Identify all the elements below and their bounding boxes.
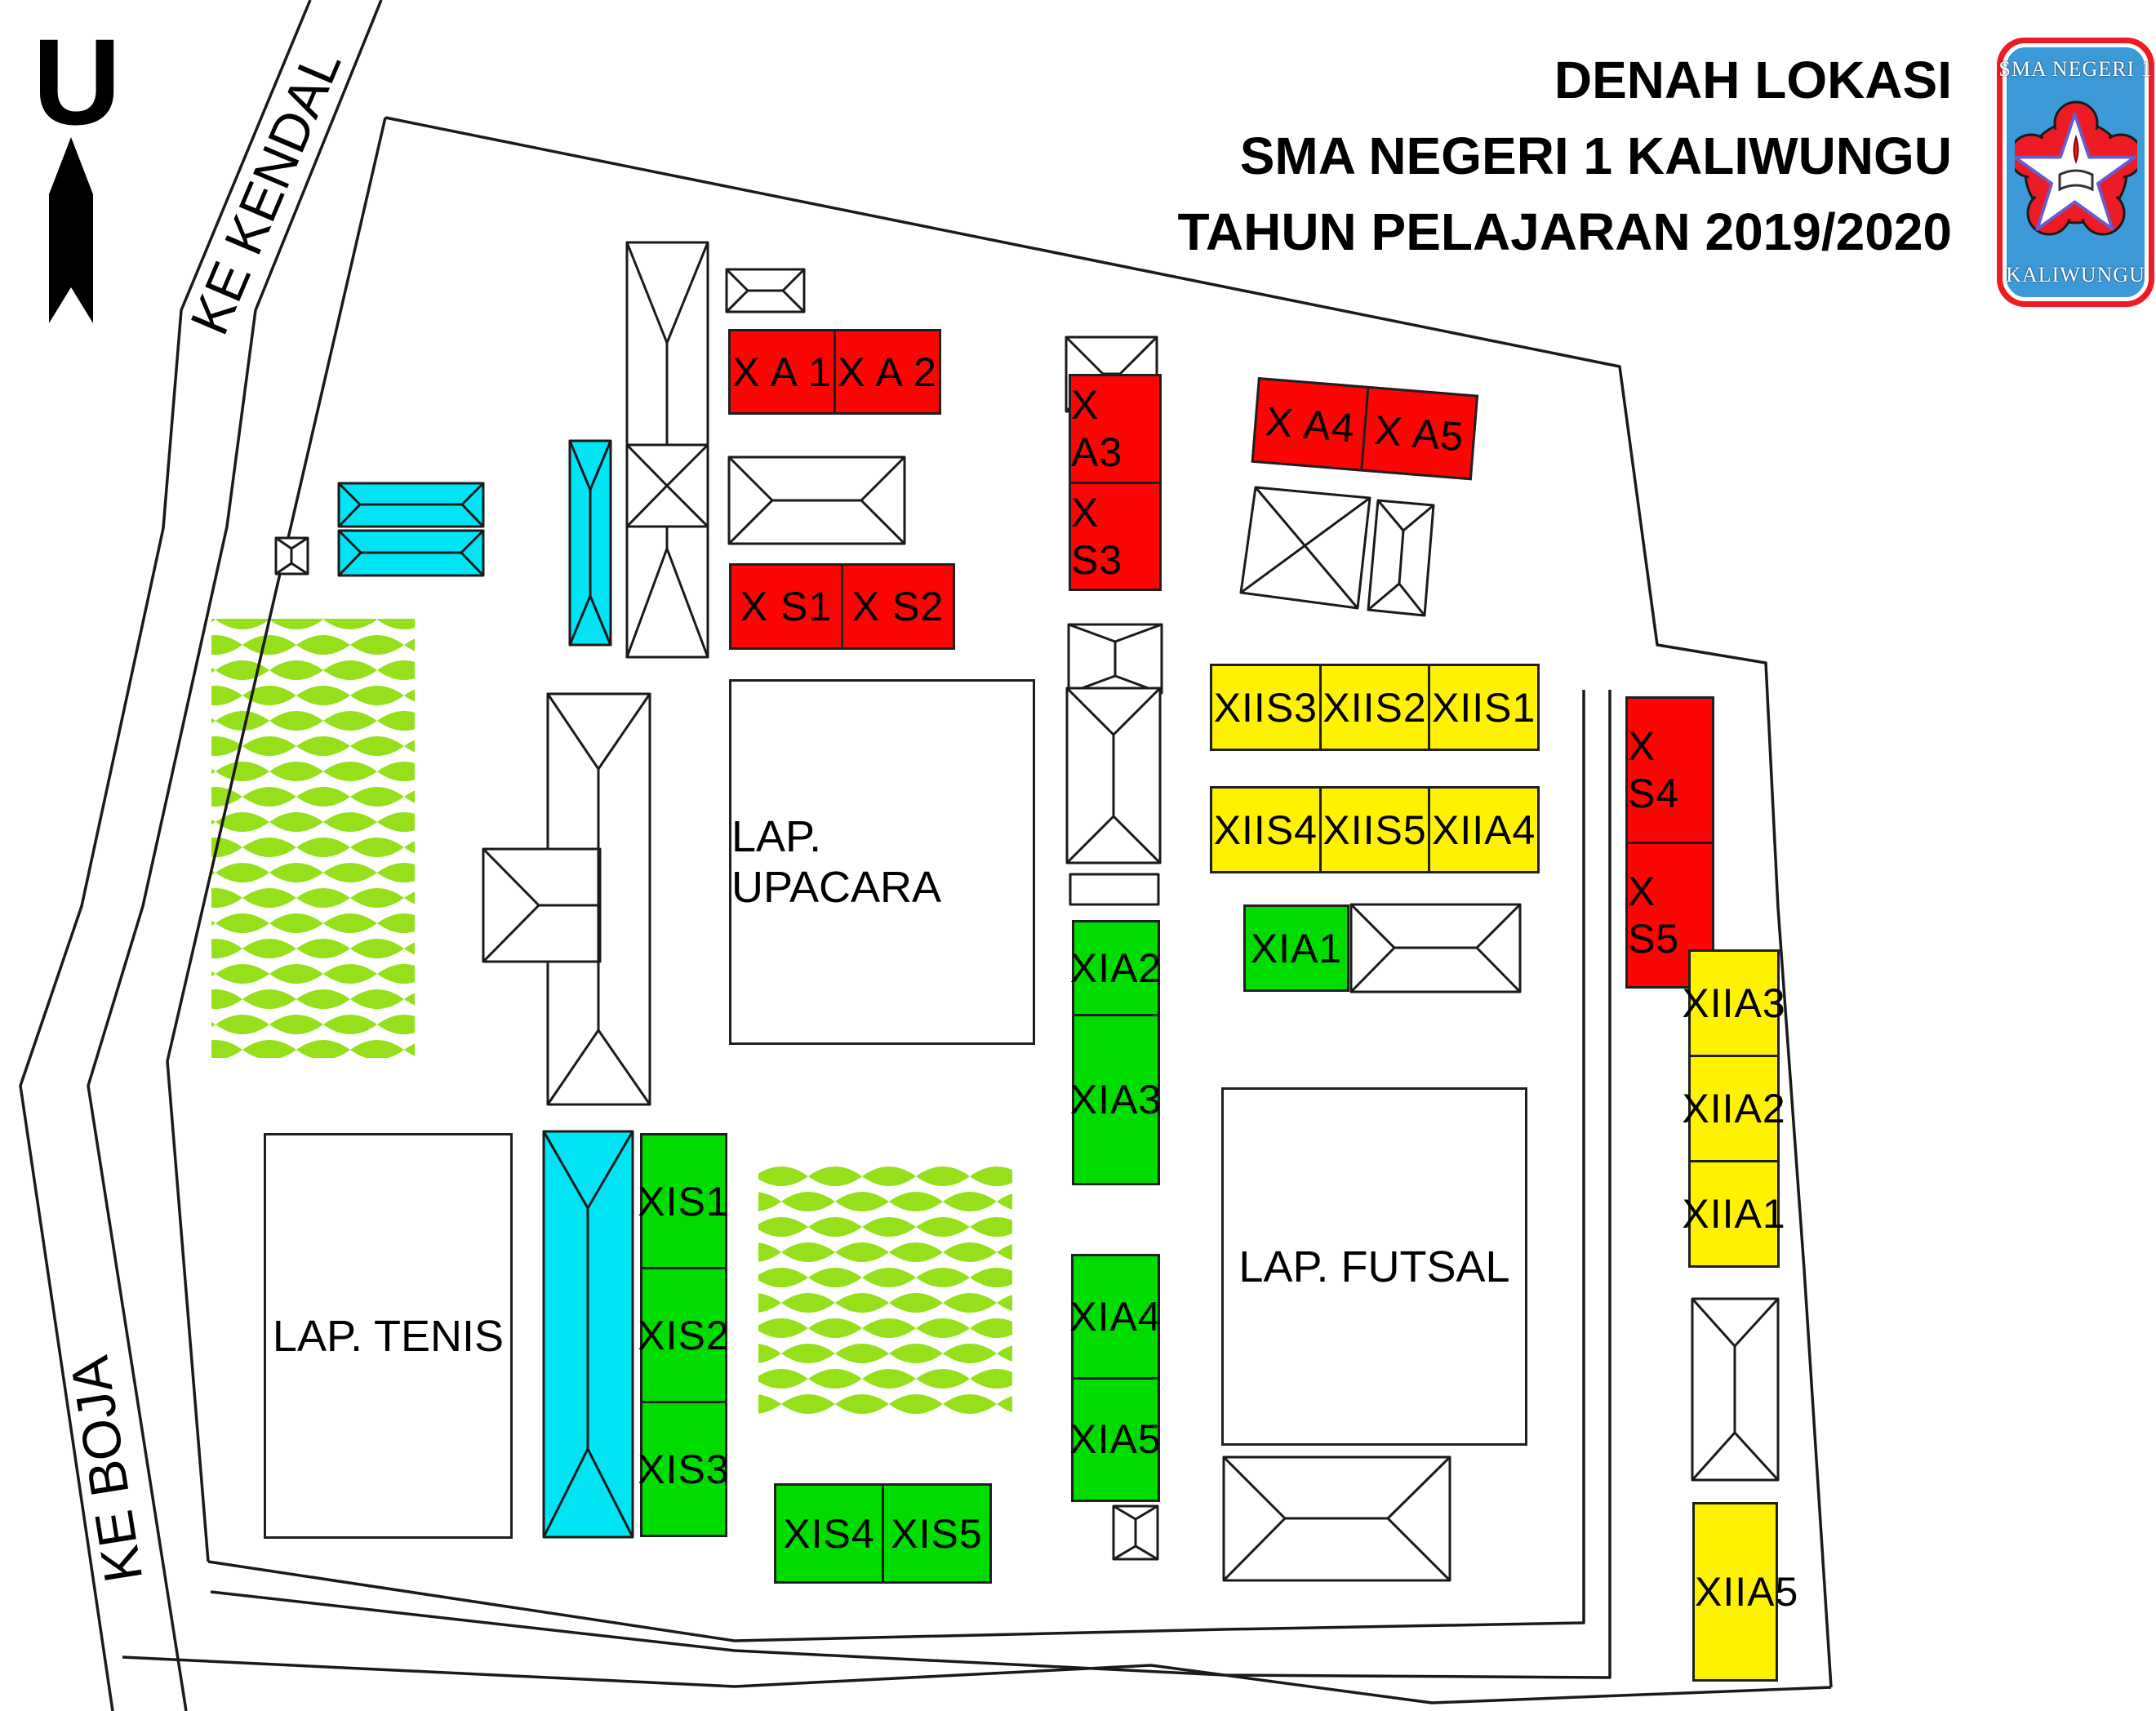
title-line-1: DENAH LOKASI (1178, 42, 1952, 118)
title-line-2: SMA NEGERI 1 KALIWUNGU (1178, 118, 1952, 194)
building-cyan-slab (570, 441, 611, 645)
classroom-xs3[interactable]: X S3 (1071, 482, 1159, 589)
building-tiny-gate (276, 538, 308, 574)
compass-north-letter: U (33, 11, 121, 153)
classroom-xa1[interactable]: X A 1 (731, 331, 834, 412)
building-x-roof (1241, 487, 1370, 608)
building-cyan-pair-bottom (339, 531, 483, 576)
site-map-canvas: U DENAH LOKASI SMA NEGERI 1 KALIWUNGU TA… (0, 0, 2156, 1711)
classroom-xiis2[interactable]: XIIS2 (1319, 666, 1429, 749)
building-north-hall (627, 242, 708, 657)
classroom-xiia2[interactable]: XIIA2 (1691, 1055, 1777, 1160)
classroom-xiis5[interactable]: XIIS5 (1319, 789, 1429, 871)
logo-top-text: SMA NEGERI 1 (1998, 57, 2152, 82)
page-title: DENAH LOKASI SMA NEGERI 1 KALIWUNGU TAHU… (1178, 42, 1952, 270)
classroom-xa3[interactable]: X A3 (1071, 376, 1159, 482)
classroom-xia1[interactable]: XIA1 (1246, 907, 1347, 989)
classroom-block-xs4-xs5[interactable]: X S4 X S5 (1625, 696, 1714, 989)
classroom-xa5[interactable]: X A5 (1360, 389, 1476, 478)
classroom-block-xia4-xia5[interactable]: XIA4 XIA5 (1071, 1254, 1160, 1502)
classroom-xiia4[interactable]: XIIA4 (1428, 789, 1537, 871)
classroom-xis5[interactable]: XIS5 (882, 1486, 989, 1581)
building-beside-xia1 (1351, 904, 1520, 992)
building-east-column (1692, 1299, 1778, 1480)
school-logo-panel: SMA NEGERI 1 KALIWUNGU (2003, 43, 2149, 301)
classroom-block-xia1[interactable]: XIA1 (1243, 904, 1349, 992)
building-small-central (1069, 624, 1162, 693)
field-lap-upacara-label: LAP. UPACARA (731, 811, 1033, 913)
classroom-xiia3[interactable]: XIIA3 (1691, 952, 1777, 1055)
building-cyan-tall (544, 1131, 633, 1537)
building-cyan-pair-top (339, 483, 483, 527)
classroom-xiis1[interactable]: XIIS1 (1428, 666, 1537, 749)
classroom-xs4[interactable]: X S4 (1628, 699, 1712, 842)
classroom-xiis4[interactable]: XIIS4 (1212, 789, 1319, 871)
classroom-xia2[interactable]: XIA2 (1074, 922, 1158, 1014)
field-lap-futsal: LAP. FUTSAL (1221, 1087, 1527, 1446)
classroom-xis4[interactable]: XIS4 (776, 1486, 882, 1581)
title-line-3: TAHUN PELAJARAN 2019/2020 (1178, 194, 1952, 270)
building-t-shape (483, 694, 650, 1104)
classroom-block-xis4-xis5[interactable]: XIS4 XIS5 (774, 1483, 992, 1584)
classroom-xia4[interactable]: XIA4 (1074, 1256, 1158, 1377)
classroom-block-xa1-xa2[interactable]: X A 1 X A 2 (728, 329, 941, 415)
north-arrow-icon (49, 137, 93, 323)
classroom-block-xiia5[interactable]: XIIA5 (1692, 1502, 1778, 1682)
classroom-block-xiis-row1[interactable]: XIIS3 XIIS2 XIIS1 (1210, 664, 1540, 751)
school-logo: SMA NEGERI 1 KALIWUNGU (1997, 38, 2154, 307)
classroom-block-xa4-xa5[interactable]: X A4 X A5 (1251, 377, 1479, 480)
classroom-xs2[interactable]: X S2 (841, 566, 953, 647)
building-narrow-rotated (1368, 500, 1434, 616)
field-lap-tenis: LAP. TENIS (264, 1133, 513, 1539)
classroom-xiia5[interactable]: XIIA5 (1695, 1504, 1798, 1679)
building-central-hall (1067, 688, 1160, 863)
tree-grove-west (211, 619, 415, 1058)
classroom-block-xiia-column[interactable]: XIIA3 XIIA2 XIIA1 (1688, 949, 1780, 1268)
building-south-futsal (1224, 1457, 1450, 1580)
classroom-xa2[interactable]: X A 2 (834, 331, 939, 412)
classroom-xis2[interactable]: XIS2 (642, 1267, 725, 1401)
classroom-block-xa3-xs3[interactable]: X A3 X S3 (1069, 374, 1162, 591)
logo-emblem-icon (2015, 95, 2137, 250)
building-plain-rect (1070, 874, 1158, 904)
classroom-xia5[interactable]: XIA5 (1074, 1377, 1158, 1500)
classroom-block-xiis-row2[interactable]: XIIS4 XIIS5 XIIA4 (1210, 786, 1540, 873)
field-lap-tenis-label: LAP. TENIS (273, 1311, 504, 1362)
classroom-xis1[interactable]: XIS1 (642, 1135, 725, 1267)
tree-grove-center (758, 1163, 1012, 1419)
building-small-north (727, 269, 804, 312)
building-mid-north (729, 457, 905, 544)
classroom-xiis3[interactable]: XIIS3 (1212, 666, 1319, 749)
classroom-xs1[interactable]: X S1 (731, 566, 841, 647)
classroom-xiia1[interactable]: XIIA1 (1691, 1160, 1777, 1265)
field-lap-upacara: LAP. UPACARA (729, 679, 1035, 1045)
field-lap-futsal-label: LAP. FUTSAL (1238, 1242, 1509, 1292)
classroom-block-xs1-xs2[interactable]: X S1 X S2 (729, 563, 955, 650)
building-tiny-south (1114, 1506, 1158, 1559)
classroom-block-xia2-xia3[interactable]: XIA2 XIA3 (1072, 920, 1160, 1185)
logo-bottom-text: KALIWUNGU (2006, 263, 2145, 287)
classroom-block-xis-column[interactable]: XIS1 XIS2 XIS3 (640, 1133, 727, 1537)
classroom-xis3[interactable]: XIS3 (642, 1401, 725, 1535)
classroom-xia3[interactable]: XIA3 (1074, 1014, 1158, 1183)
classroom-xa4[interactable]: X A4 (1254, 380, 1367, 469)
